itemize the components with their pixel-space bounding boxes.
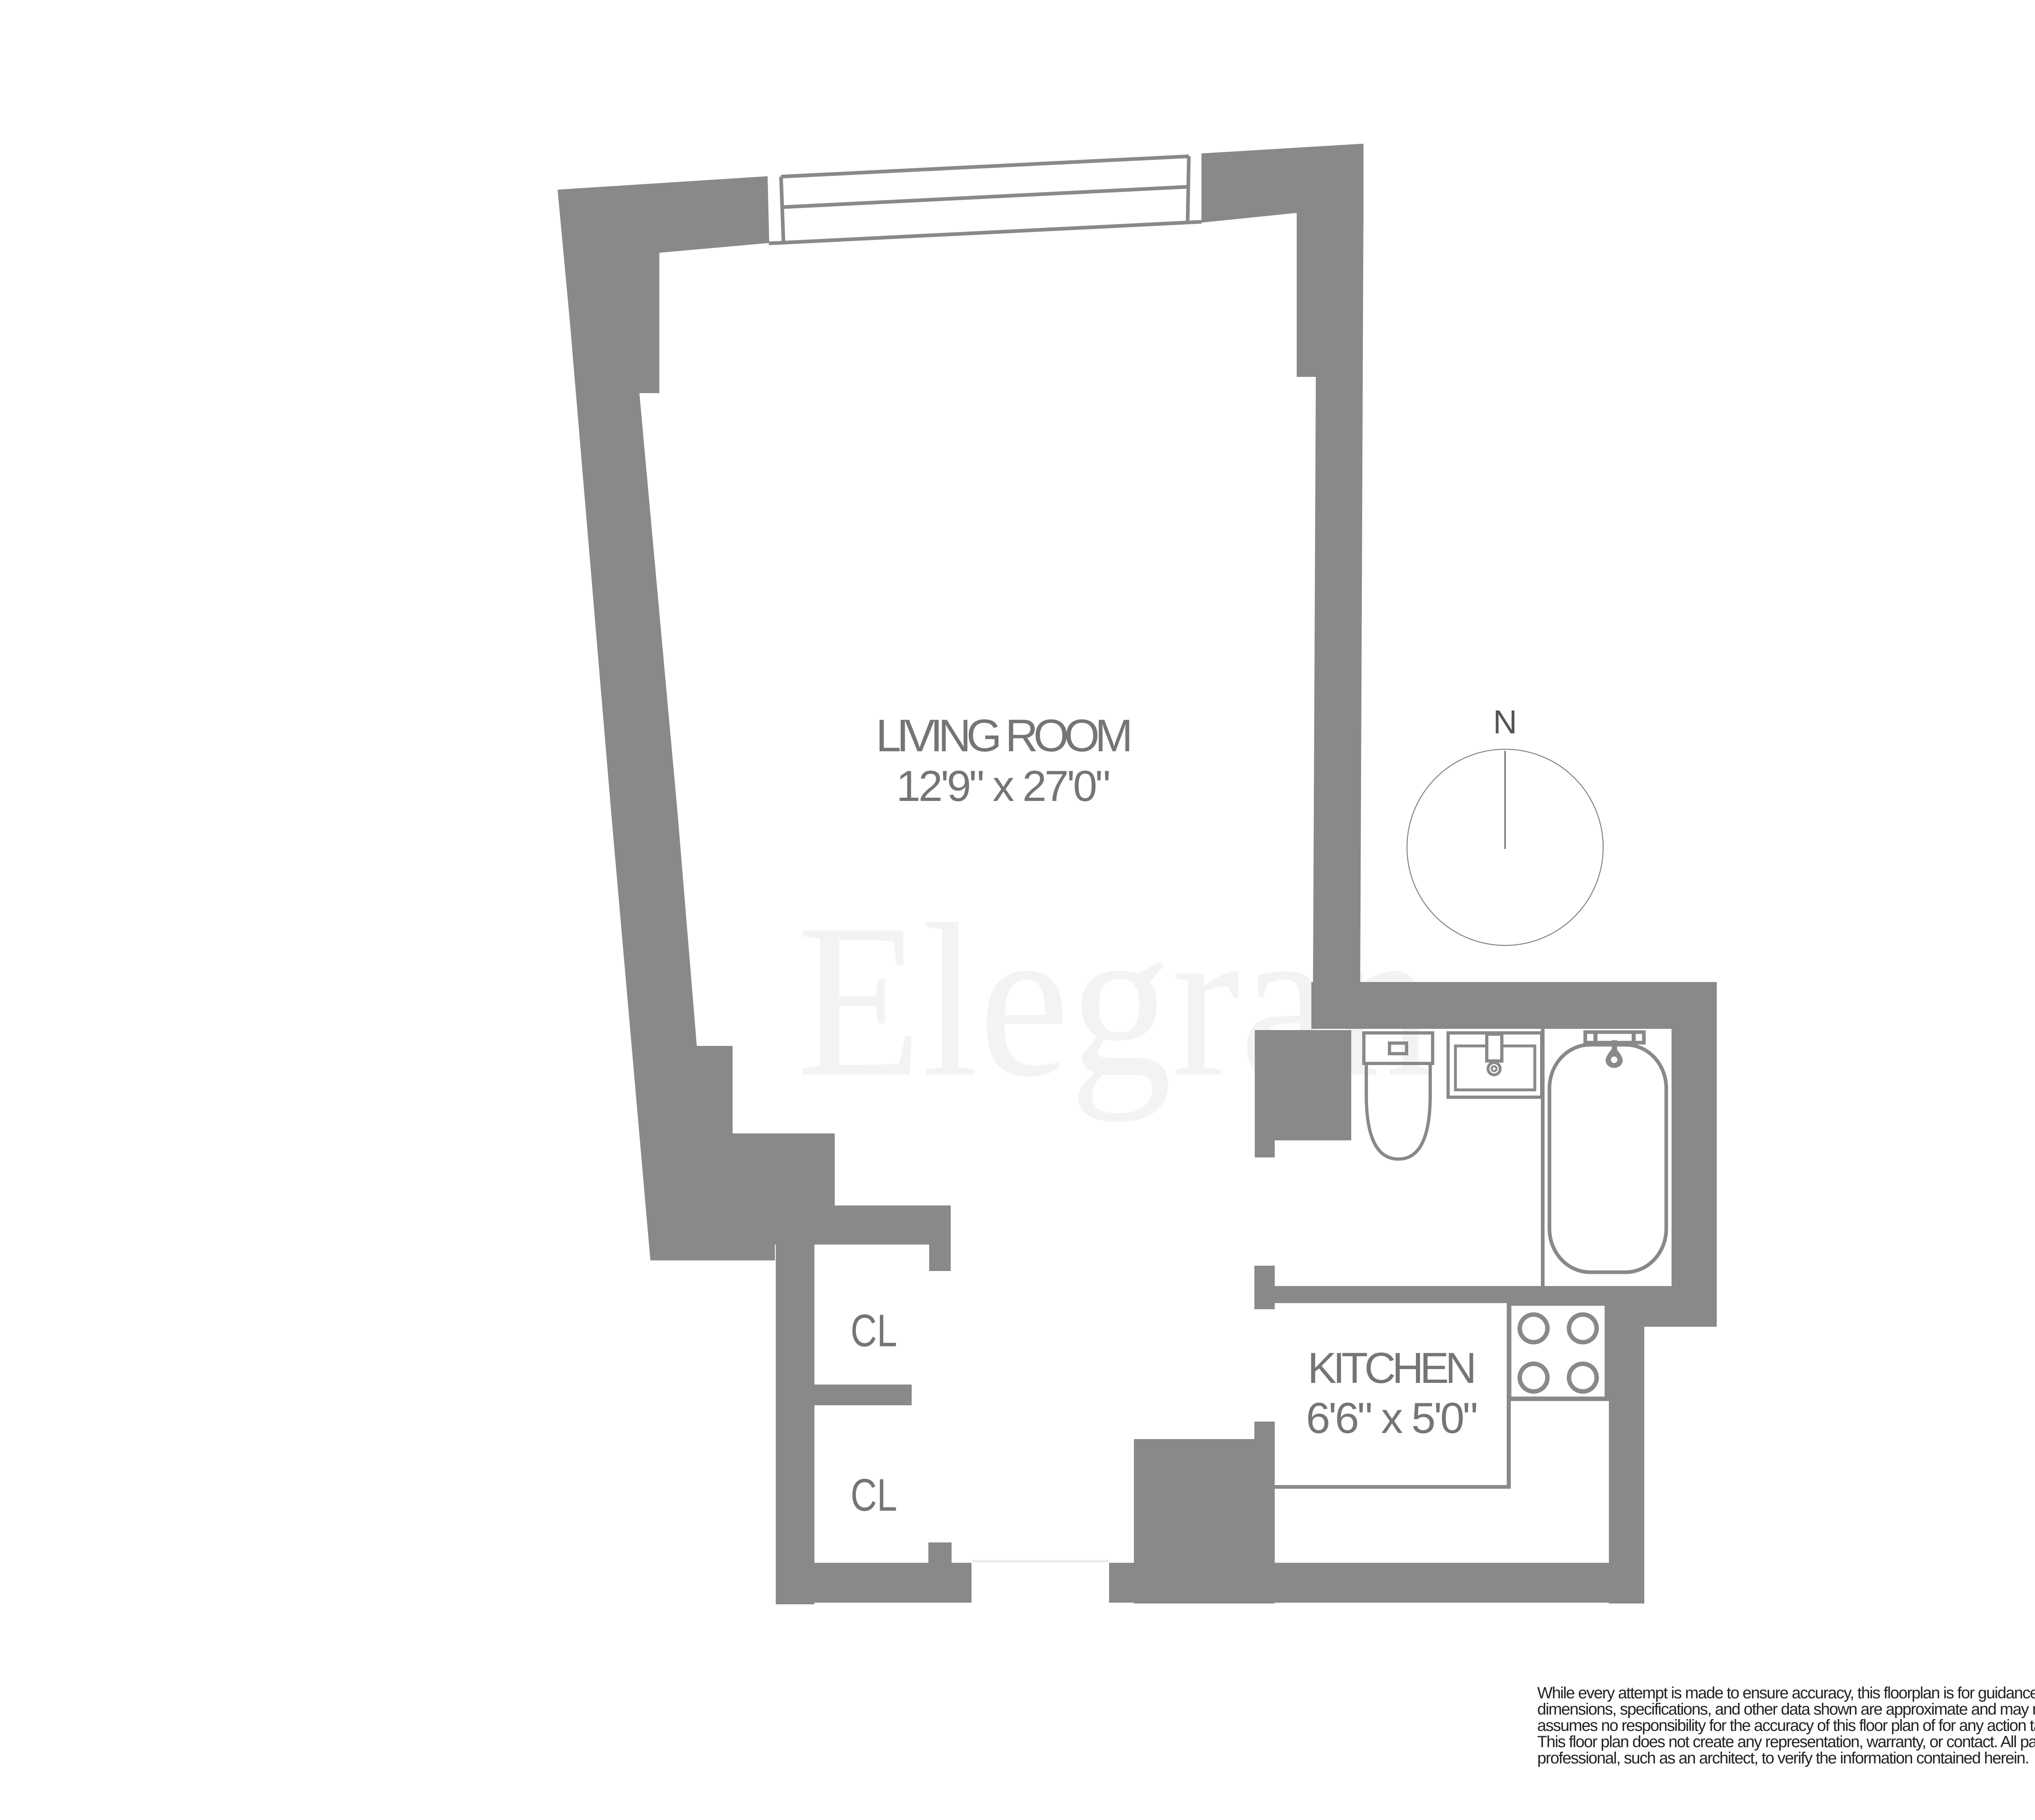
svg-text:12'9" x 27'0": 12'9" x 27'0" <box>896 761 1109 810</box>
svg-text:N: N <box>1493 704 1517 741</box>
svg-text:KITCHEN: KITCHEN <box>1308 1343 1473 1392</box>
svg-text:CL: CL <box>851 1470 897 1521</box>
svg-text:assumes no responsibility for: assumes no responsibility for the accura… <box>1537 1717 2035 1735</box>
svg-text:dimensions, specifications, an: dimensions, specifications, and other da… <box>1537 1700 2035 1718</box>
svg-text:professional, such as an archi: professional, such as an architect, to v… <box>1537 1749 2028 1767</box>
svg-text:CL: CL <box>851 1306 897 1356</box>
svg-text:LIVING ROOM: LIVING ROOM <box>876 710 1129 761</box>
svg-text:This floor plan does not creat: This floor plan does not create any repr… <box>1537 1733 2035 1751</box>
svg-text:While every attempt is made to: While every attempt is made to ensure ac… <box>1537 1684 2035 1702</box>
svg-text:6'6" x 5'0": 6'6" x 5'0" <box>1306 1393 1477 1442</box>
